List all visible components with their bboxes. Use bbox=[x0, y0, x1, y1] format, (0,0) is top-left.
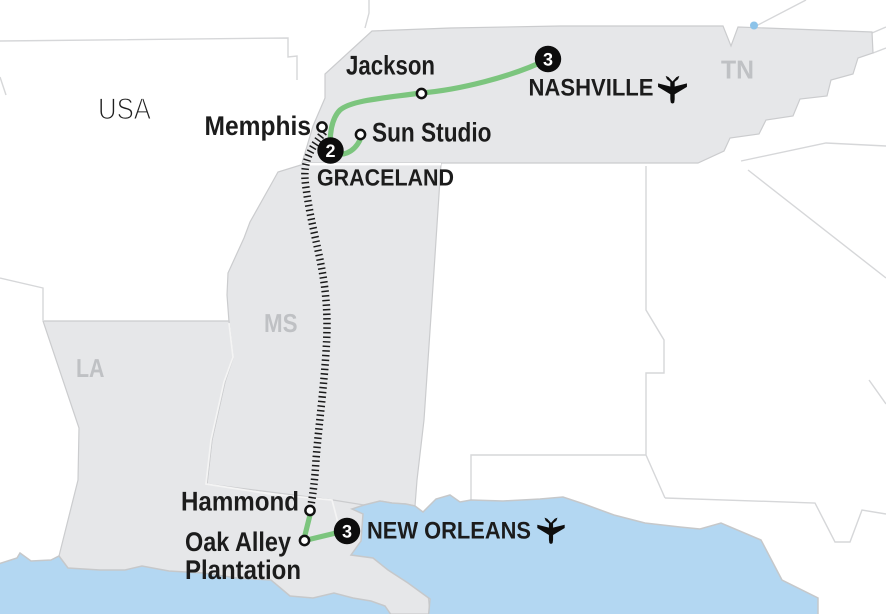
svg-text:Memphis: Memphis bbox=[205, 111, 312, 141]
svg-text:USA: USA bbox=[98, 93, 151, 126]
svg-text:LA: LA bbox=[76, 353, 105, 383]
svg-text:Jackson: Jackson bbox=[346, 51, 435, 81]
svg-text:TN: TN bbox=[721, 55, 754, 85]
svg-text:NASHVILLE: NASHVILLE bbox=[529, 75, 654, 102]
svg-text:GRACELAND: GRACELAND bbox=[317, 164, 454, 190]
svg-text:Plantation: Plantation bbox=[185, 555, 301, 585]
svg-text:Oak Alley: Oak Alley bbox=[185, 527, 291, 557]
svg-text:3: 3 bbox=[543, 50, 553, 70]
svg-text:MS: MS bbox=[264, 308, 298, 338]
svg-text:2: 2 bbox=[325, 141, 335, 161]
svg-text:NEW ORLEANS: NEW ORLEANS bbox=[367, 518, 531, 545]
svg-text:3: 3 bbox=[342, 522, 352, 542]
svg-text:Sun Studio: Sun Studio bbox=[372, 118, 492, 148]
svg-text:Hammond: Hammond bbox=[181, 487, 299, 517]
